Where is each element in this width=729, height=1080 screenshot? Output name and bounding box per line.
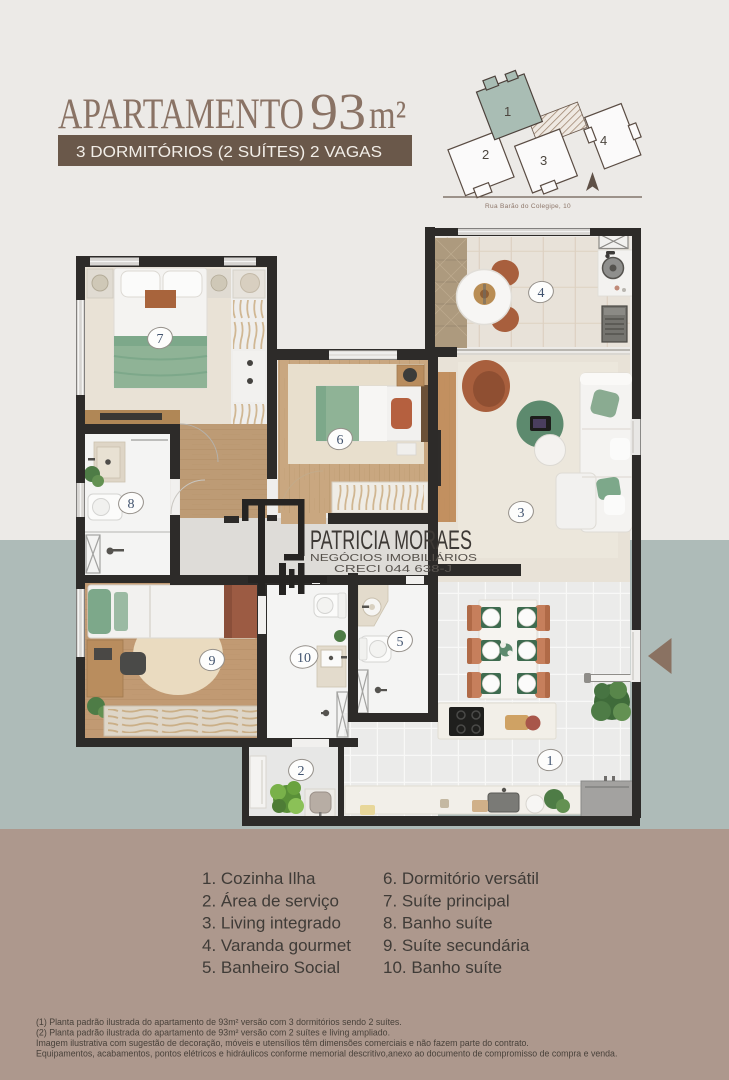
svg-text:4: 4 (600, 133, 607, 148)
svg-text:4. Varanda gourmet: 4. Varanda gourmet (202, 936, 351, 955)
svg-text:93: 93 (310, 84, 366, 141)
svg-text:3: 3 (540, 153, 547, 168)
svg-text:6. Dormitório versátil: 6. Dormitório versátil (383, 869, 539, 888)
svg-text:2. Área de serviço: 2. Área de serviço (202, 891, 339, 910)
svg-text:3: 3 (518, 506, 525, 521)
svg-text:9. Suíte secundária: 9. Suíte secundária (383, 936, 530, 955)
svg-text:9: 9 (209, 654, 216, 669)
svg-text:Rua Barão do Colegipe, 10: Rua Barão do Colegipe, 10 (485, 203, 571, 210)
svg-text:4: 4 (538, 286, 545, 301)
svg-text:8: 8 (128, 497, 135, 512)
svg-text:m²: m² (369, 92, 406, 137)
svg-text:2: 2 (298, 764, 305, 779)
svg-text:5. Banheiro Social: 5. Banheiro Social (202, 958, 340, 977)
svg-text:1: 1 (504, 104, 511, 119)
svg-text:8. Banho suíte: 8. Banho suíte (383, 914, 493, 933)
svg-text:5: 5 (397, 635, 404, 650)
svg-text:CRECI 044 638-J: CRECI 044 638-J (334, 563, 452, 575)
svg-text:10: 10 (297, 651, 311, 666)
svg-text:Equipamentos, acabamentos, pon: Equipamentos, acabamentos, pontos elétri… (36, 1049, 617, 1059)
svg-text:APARTAMENTO: APARTAMENTO (58, 91, 304, 138)
svg-text:Imagem ilustrativa com sugestã: Imagem ilustrativa com sugestão de decor… (36, 1038, 529, 1048)
svg-text:(1) Planta padrão ilustrada do: (1) Planta padrão ilustrada do apartamen… (36, 1017, 402, 1027)
svg-text:PATRICIA MORAES: PATRICIA MORAES (310, 525, 472, 555)
svg-text:7: 7 (157, 332, 164, 347)
svg-text:10. Banho suíte: 10. Banho suíte (383, 958, 502, 977)
svg-text:2: 2 (482, 147, 489, 162)
svg-text:1: 1 (547, 754, 554, 769)
svg-text:6: 6 (337, 433, 344, 448)
svg-text:3 DORMITÓRIOS (2 SUÍTES) 2 VAG: 3 DORMITÓRIOS (2 SUÍTES) 2 VAGAS (76, 144, 382, 161)
svg-text:7. Suíte principal: 7. Suíte principal (383, 891, 510, 910)
svg-text:(2) Planta padrão ilustrada do: (2) Planta padrão ilustrada do apartamen… (36, 1028, 390, 1038)
svg-text:1. Cozinha Ilha: 1. Cozinha Ilha (202, 869, 316, 888)
svg-text:3. Living integrado: 3. Living integrado (202, 914, 341, 933)
